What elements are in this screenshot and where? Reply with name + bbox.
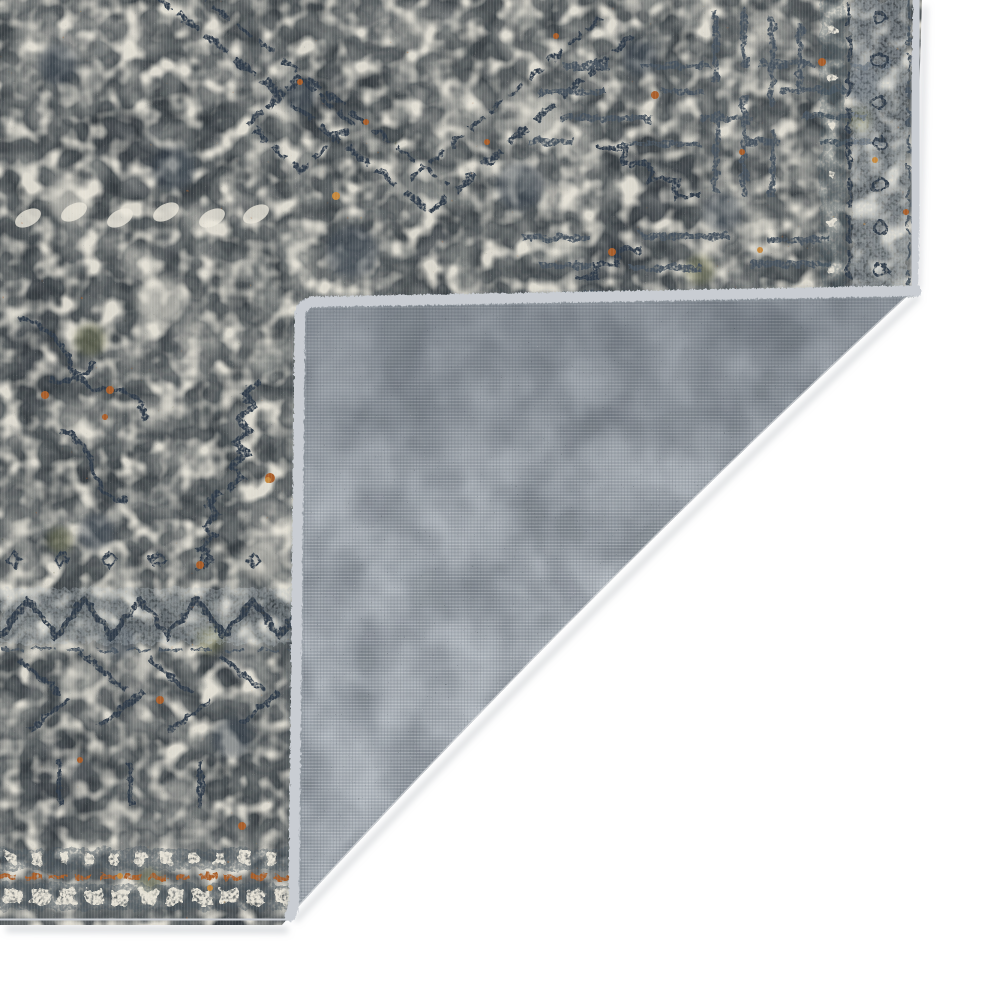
right-edge-binding	[912, 2, 919, 290]
product-image	[0, 0, 1000, 1000]
bottom-edge-binding	[2, 919, 285, 920]
rug-product-photo	[0, 0, 1000, 1000]
